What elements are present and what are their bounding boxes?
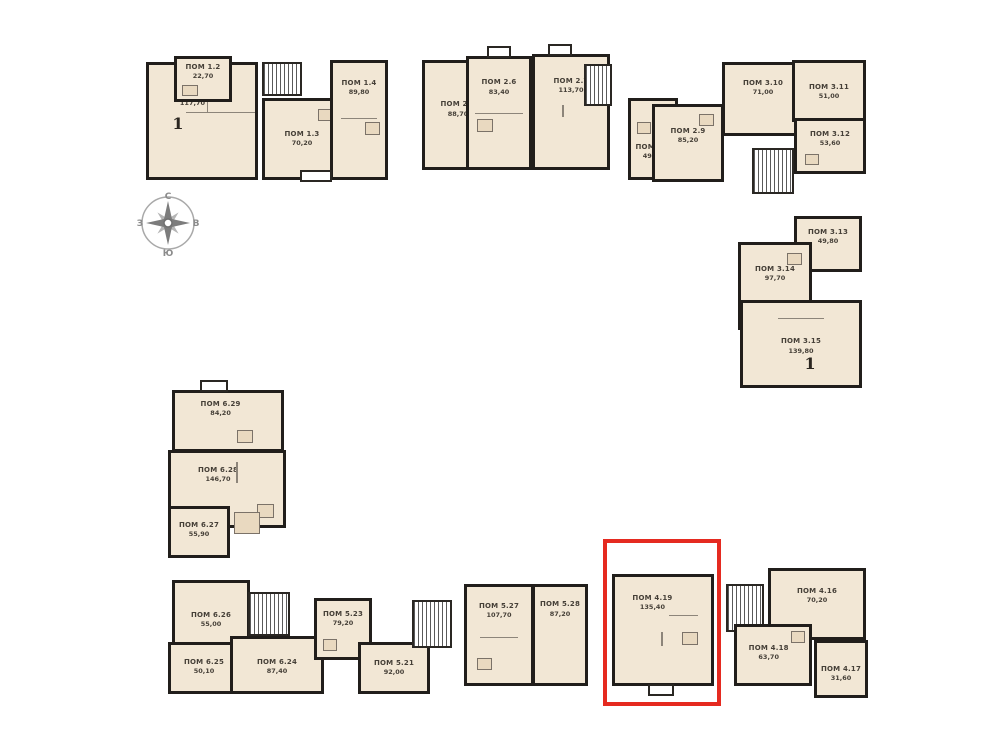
unit-pom-5-21[interactable]: ПОМ 5.21 92,00 — [358, 642, 430, 694]
compass-north-label: С — [165, 192, 172, 202]
unit-area: 51,00 — [795, 92, 863, 100]
unit-name: ПОМ 6.27 — [171, 521, 227, 530]
unit-area: 55,00 — [175, 620, 247, 628]
unit-pom-1-4[interactable]: ПОМ 1.4 89,80 — [330, 60, 388, 180]
unit-pom-4-18[interactable]: ПОМ 4.18 63,70 — [734, 624, 812, 686]
unit-name: ПОМ 3.11 — [795, 83, 863, 92]
unit-name: ПОМ 2.6 — [469, 78, 529, 87]
inner-wall — [562, 105, 564, 117]
unit-name: ПОМ 6.26 — [175, 611, 247, 620]
unit-name: ПОМ 5.27 — [467, 602, 531, 611]
compass-south-label: Ю — [163, 249, 174, 258]
inner-wall — [341, 118, 377, 119]
unit-area: 71,00 — [725, 88, 801, 96]
fixture-box — [791, 631, 805, 643]
unit-name: ПОМ 2.9 — [655, 127, 721, 136]
selected-unit-highlight — [603, 539, 721, 706]
compass-east-label: В — [193, 219, 200, 229]
unit-pom-5-28[interactable]: ПОМ 5.28 87,20 — [532, 584, 588, 686]
inner-wall — [480, 637, 518, 638]
fixture-box — [477, 658, 492, 670]
section-mark: 1 — [172, 114, 183, 133]
unit-name: ПОМ 6.25 — [171, 658, 237, 667]
unit-area: 22,70 — [177, 72, 229, 80]
balcony-bump — [200, 380, 228, 392]
fixture-box — [477, 119, 493, 132]
unit-area: 87,40 — [233, 667, 321, 675]
unit-pom-3-12[interactable]: ПОМ 3.12 53,60 — [794, 118, 866, 174]
unit-area: 107,70 — [467, 611, 531, 619]
unit-pom-2-9[interactable]: ПОМ 2.9 85,20 — [652, 104, 724, 182]
unit-area: 79,20 — [317, 619, 369, 627]
fixture-box — [323, 639, 337, 651]
unit-name: ПОМ 6.29 — [160, 400, 281, 409]
unit-area: 31,60 — [817, 674, 865, 682]
fixture-box — [182, 85, 198, 96]
unit-area: 63,70 — [728, 653, 809, 661]
section-mark: 1 — [804, 354, 815, 373]
fixture-box — [699, 114, 714, 126]
elevator-shaft — [752, 148, 794, 194]
unit-pom-1-2[interactable]: ПОМ 1.2 22,70 — [174, 56, 232, 102]
fixture-box — [234, 512, 260, 534]
unit-name: ПОМ 1.2 — [177, 63, 229, 72]
unit-area: 70,20 — [771, 596, 863, 604]
fixture-box — [805, 154, 819, 165]
unit-area: 55,90 — [171, 530, 227, 538]
stairwell — [262, 62, 302, 96]
unit-name: ПОМ 6.24 — [233, 658, 321, 667]
unit-area: 70,20 — [265, 139, 339, 147]
entry-porch — [300, 170, 332, 182]
balcony-bump — [548, 44, 572, 56]
unit-name: ПОМ 6.28 — [153, 466, 283, 475]
compass-rose: С В Ю З — [133, 188, 203, 258]
unit-area: 83,40 — [469, 88, 529, 96]
unit-pom-6-27[interactable]: ПОМ 6.27 55,90 — [168, 506, 230, 558]
unit-name: ПОМ 4.16 — [771, 587, 863, 596]
stairwell — [584, 64, 612, 106]
unit-area: 89,80 — [333, 88, 385, 96]
unit-pom-3-11[interactable]: ПОМ 3.11 51,00 — [792, 60, 866, 122]
fixture-box — [787, 253, 802, 265]
floor-plan-canvas: ПОМ 1.1 117,70 1 ПОМ 1.2 22,70 ПОМ 1.3 7… — [0, 0, 1000, 750]
stairwell — [248, 592, 290, 636]
unit-area: 92,00 — [361, 668, 427, 676]
unit-pom-6-29[interactable]: ПОМ 6.29 84,20 — [172, 390, 284, 452]
unit-area: 139,80 — [743, 347, 859, 355]
fixture-box — [365, 122, 380, 135]
unit-name: ПОМ 1.3 — [265, 130, 339, 139]
unit-pom-3-15[interactable]: ПОМ 3.15 139,80 1 — [740, 300, 862, 388]
balcony-bump — [487, 46, 511, 58]
compass-west-label: З — [137, 219, 143, 229]
unit-area: 50,10 — [171, 667, 237, 675]
inner-wall — [475, 113, 523, 114]
fixture-box — [237, 430, 253, 443]
unit-name: ПОМ 3.15 — [743, 337, 859, 346]
unit-name: ПОМ 4.17 — [817, 665, 865, 674]
unit-area: 146,70 — [153, 475, 283, 483]
unit-area: 97,70 — [741, 274, 809, 282]
unit-name: ПОМ 3.12 — [797, 130, 863, 139]
unit-pom-2-6[interactable]: ПОМ 2.6 83,40 — [466, 56, 532, 170]
inner-wall — [778, 318, 824, 319]
unit-pom-5-27[interactable]: ПОМ 5.27 107,70 — [464, 584, 534, 686]
unit-name: ПОМ 4.18 — [728, 644, 809, 653]
unit-area: 85,20 — [655, 136, 721, 144]
unit-area: 53,60 — [797, 139, 863, 147]
unit-name: ПОМ 5.28 — [535, 600, 585, 609]
elevator-shaft — [412, 600, 452, 648]
unit-pom-4-17[interactable]: ПОМ 4.17 31,60 — [814, 640, 868, 698]
unit-name: ПОМ 3.13 — [797, 228, 859, 237]
unit-name: ПОМ 5.21 — [361, 659, 427, 668]
unit-name: ПОМ 3.10 — [725, 79, 801, 88]
unit-area: 84,20 — [160, 409, 281, 417]
unit-pom-6-24[interactable]: ПОМ 6.24 87,40 — [230, 636, 324, 694]
inner-wall — [236, 462, 238, 484]
fixture-box — [637, 122, 651, 134]
unit-name: ПОМ 3.14 — [741, 265, 809, 274]
unit-name: ПОМ 1.4 — [333, 79, 385, 88]
inner-wall — [186, 112, 255, 113]
unit-name: ПОМ 5.23 — [317, 610, 369, 619]
unit-area: 87,20 — [535, 610, 585, 618]
